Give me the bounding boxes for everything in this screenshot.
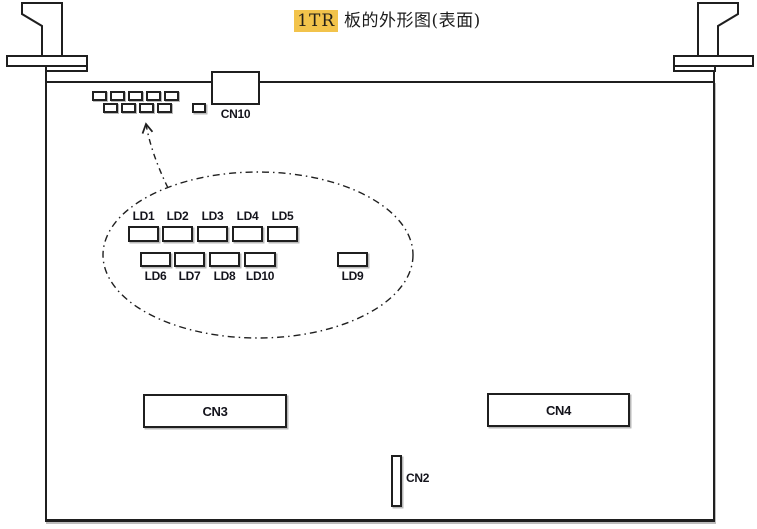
led-ld9-label: LD9: [337, 269, 368, 283]
edge-led-row-1: [92, 91, 179, 101]
connector-cn10-label: CN10: [211, 107, 260, 121]
left-ejector-step: [46, 66, 87, 71]
connector-cn4: CN4: [487, 393, 630, 427]
right-ejector-lever: [698, 3, 738, 56]
led-ld5-label: LD5: [267, 209, 298, 223]
led-ld6: [140, 252, 171, 267]
led-ld1-label: LD1: [128, 209, 159, 223]
led-ld8-label: LD8: [209, 269, 240, 283]
connector-cn10: [211, 71, 260, 105]
led-ld8: [209, 252, 240, 267]
edge-led: [92, 91, 107, 101]
connector-cn2: [391, 455, 402, 507]
board-outline-diagram: 1TR 板的外形图(表面): [0, 0, 757, 529]
edge-led: [157, 103, 172, 113]
led-ld3: [197, 226, 228, 242]
led-ld2: [162, 226, 193, 242]
connector-cn3: CN3: [143, 394, 287, 428]
edge-component: [192, 103, 206, 113]
edge-led: [146, 91, 161, 101]
led-ld3-label: LD3: [197, 209, 228, 223]
edge-led: [128, 91, 143, 101]
left-ejector-bar: [7, 56, 87, 66]
diagram-linework: [0, 0, 757, 529]
led-ld1: [128, 226, 159, 242]
right-ejector-bracket: [674, 3, 753, 82]
callout-arrow: [146, 124, 168, 188]
right-ejector-step: [674, 66, 715, 71]
led-ld7-label: LD7: [174, 269, 205, 283]
connector-cn3-label: CN3: [202, 404, 227, 419]
led-ld4: [232, 226, 263, 242]
edge-led: [103, 103, 118, 113]
connector-cn2-label: CN2: [406, 471, 429, 485]
edge-led: [164, 91, 179, 101]
led-ld2-label: LD2: [162, 209, 193, 223]
left-ejector-bracket: [7, 3, 87, 82]
led-ld6-label: LD6: [140, 269, 171, 283]
led-ld9: [337, 252, 368, 267]
led-ld4-label: LD4: [232, 209, 263, 223]
left-ejector-lever: [22, 3, 62, 56]
connector-cn4-label: CN4: [546, 403, 571, 418]
led-ld5: [267, 226, 298, 242]
right-ejector-bar: [674, 56, 753, 66]
led-ld10: [244, 252, 276, 267]
edge-led: [139, 103, 154, 113]
led-ld10-label: LD10: [244, 269, 276, 283]
edge-led: [110, 91, 125, 101]
led-ld7: [174, 252, 205, 267]
edge-led-row-2: [103, 103, 172, 113]
edge-led: [121, 103, 136, 113]
